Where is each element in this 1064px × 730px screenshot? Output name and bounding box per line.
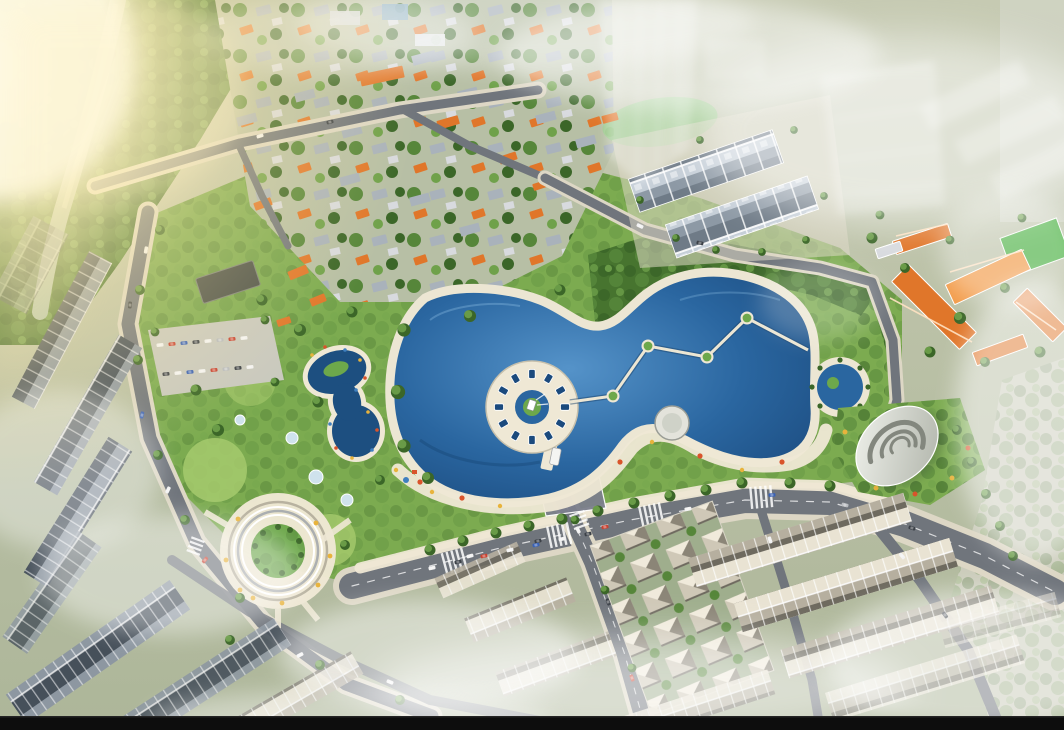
round-pavilion (655, 406, 689, 440)
rendering-canvas (0, 0, 1064, 730)
letterbox-bar (0, 716, 1064, 730)
aerial-masterplan-rendering (0, 0, 1064, 730)
